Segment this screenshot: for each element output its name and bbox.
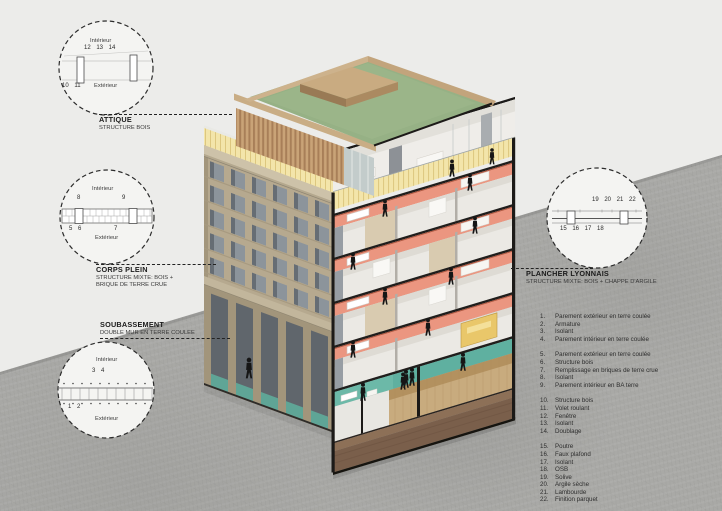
- corps-plein-number-8: 8: [77, 195, 80, 201]
- soubassement-callout: SOUBASSEMENT DOUBLE MUR EN TERRE COULEE: [100, 321, 195, 337]
- legend-item: 18.OSB: [540, 466, 722, 474]
- corps-plein-subtitle-2: BRIQUE DE TERRE CRUE: [96, 282, 173, 289]
- legend-item: 16.Faux plafond: [540, 451, 722, 459]
- soubassement-subtitle: DOUBLE MUR EN TERRE COULEE: [100, 330, 195, 337]
- legend-item: 10.Structure bois: [540, 397, 722, 405]
- legend-item: 13.Isolant: [540, 420, 722, 428]
- section-cut-edge: [332, 193, 335, 473]
- corps-plein-interior-label: Intérieur: [92, 186, 113, 192]
- corps-plein-exterior-label: Extérieur: [95, 235, 118, 241]
- plancher-callout: PLANCHER LYONNAIS STRUCTURE MIXTE: BOIS …: [526, 270, 657, 286]
- attique-interior-label: Intérieur: [90, 38, 111, 44]
- soubassement-top-numbers: 3 4: [92, 368, 104, 374]
- building-facade-left: [204, 145, 333, 432]
- legend-item: 15.Poutre: [540, 443, 722, 451]
- plancher-title: PLANCHER LYONNAIS: [526, 270, 657, 279]
- plancher-subtitle: STRUCTURE MIXTE: BOIS + CHAPPE D'ARGILE: [526, 279, 657, 286]
- legend-item: 9.Parement intérieur en BA terre: [540, 382, 722, 390]
- plancher-bottom-numbers: 15 16 17 18: [560, 226, 604, 232]
- attique-bottom-numbers: 10 11: [62, 83, 81, 89]
- attique-title: ATTIQUE: [99, 116, 150, 125]
- legend-item: 6.Structure bois: [540, 359, 722, 367]
- legend-item: 3.Isolant: [540, 328, 722, 336]
- corps-plein-number-9: 9: [122, 195, 125, 201]
- legend-item: 1.Parement extérieur en terre coulée: [540, 313, 722, 321]
- attique-subtitle: STRUCTURE BOIS: [99, 125, 150, 132]
- legend-item: 2.Armature: [540, 321, 722, 329]
- legend-item: 22.Finition parquet: [540, 496, 722, 504]
- legend-item: 21.Lambourde: [540, 489, 722, 497]
- attique-top-numbers: 12 13 14: [84, 45, 115, 51]
- legend-item: 12.Fenêtre: [540, 413, 722, 421]
- legend-item: 7.Remplissage en briques de terre crue: [540, 367, 722, 375]
- corps-plein-callout: CORPS PLEIN STRUCTURE MIXTE: BOIS + BRIQ…: [96, 266, 173, 289]
- legend-item: 19.Solive: [540, 474, 722, 482]
- corps-plein-number-7: 7: [114, 226, 117, 232]
- detail-circle-attique: [59, 21, 153, 115]
- legend-item: 4.Parement intérieur en terre coulée: [540, 336, 722, 344]
- legend-item: 5.Parement extérieur en terre coulée: [540, 351, 722, 359]
- soubassement-interior-label: Intérieur: [96, 357, 117, 363]
- legend-item: 17.Isolant: [540, 459, 722, 467]
- soubassement-leader-line: [100, 338, 230, 339]
- architectural-diagram-page: Intérieur 12 13 14 10 11 Extérieur Intér…: [0, 0, 722, 511]
- legend-item: 8.Isolant: [540, 374, 722, 382]
- corps-plein-title: CORPS PLEIN: [96, 266, 173, 275]
- attique-exterior-label: Extérieur: [94, 83, 117, 89]
- soubassement-exterior-label: Extérieur: [95, 416, 118, 422]
- legend-item: 14.Doublage: [540, 428, 722, 436]
- legend-item: 20.Argile sèche: [540, 481, 722, 489]
- legend-item: 11.Volet roulant: [540, 405, 722, 413]
- detail-circle-plancher-lyonnais: [547, 168, 647, 268]
- plancher-top-numbers: 19 20 21 22: [592, 197, 636, 203]
- materials-legend: 1.Parement extérieur en terre coulée 2.A…: [540, 313, 722, 504]
- soubassement-bottom-numbers: 1 2: [68, 404, 80, 410]
- detail-circle-corps-plein: [60, 170, 154, 264]
- corps-plein-subtitle-1: STRUCTURE MIXTE: BOIS +: [96, 275, 173, 282]
- attique-callout: ATTIQUE STRUCTURE BOIS: [99, 116, 150, 132]
- soubassement-title: SOUBASSEMENT: [100, 321, 195, 330]
- corps-plein-numbers-5-6: 5 6: [69, 226, 81, 232]
